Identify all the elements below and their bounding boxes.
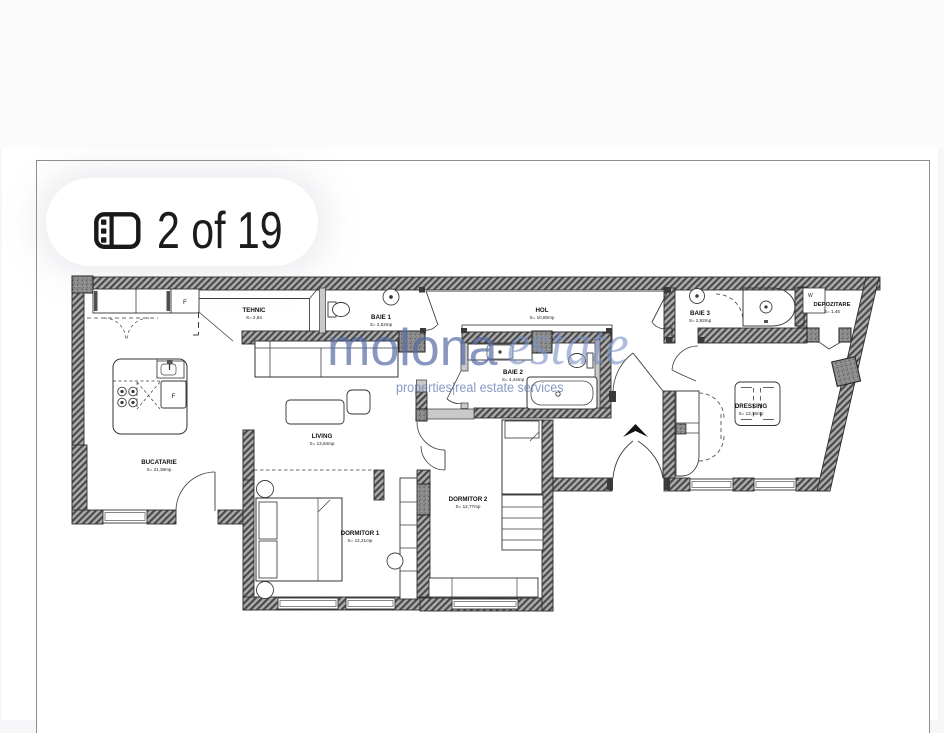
svg-text:F: F	[183, 299, 187, 306]
svg-text:estate: estate	[507, 312, 629, 376]
svg-text:molona: molona	[327, 319, 498, 377]
svg-text:TEHNIC: TEHNIC	[242, 307, 266, 314]
svg-text:DEPOZITARE: DEPOZITARE	[814, 302, 851, 308]
svg-text:F: F	[172, 393, 176, 400]
svg-text:W: W	[808, 293, 813, 299]
svg-text:S= 1,45: S= 1,45	[824, 309, 840, 314]
svg-text:LIVING: LIVING	[312, 433, 333, 440]
svg-text:DORMITOR 1: DORMITOR 1	[341, 530, 380, 537]
svg-text:S= 2,84: S= 2,84	[246, 315, 262, 320]
svg-text:S= 12,77mp: S= 12,77mp	[456, 504, 481, 509]
svg-text:DRESSING: DRESSING	[735, 403, 768, 410]
svg-text:S= 13,36mp: S= 13,36mp	[739, 411, 764, 416]
svg-text:S= 13,84mp: S= 13,84mp	[310, 441, 335, 446]
svg-text:BUCATARIE: BUCATARIE	[141, 459, 177, 466]
svg-text:S= 2,92mp: S= 2,92mp	[689, 318, 712, 323]
svg-text:DORMITOR 2: DORMITOR 2	[449, 496, 488, 503]
svg-text:S= 21,38mp: S= 21,38mp	[147, 467, 172, 472]
svg-text:properties|real estate service: properties|real estate services	[396, 379, 564, 395]
svg-text:S= 12,21mp: S= 12,21mp	[348, 538, 373, 543]
svg-text:BAIE 3: BAIE 3	[690, 310, 711, 317]
